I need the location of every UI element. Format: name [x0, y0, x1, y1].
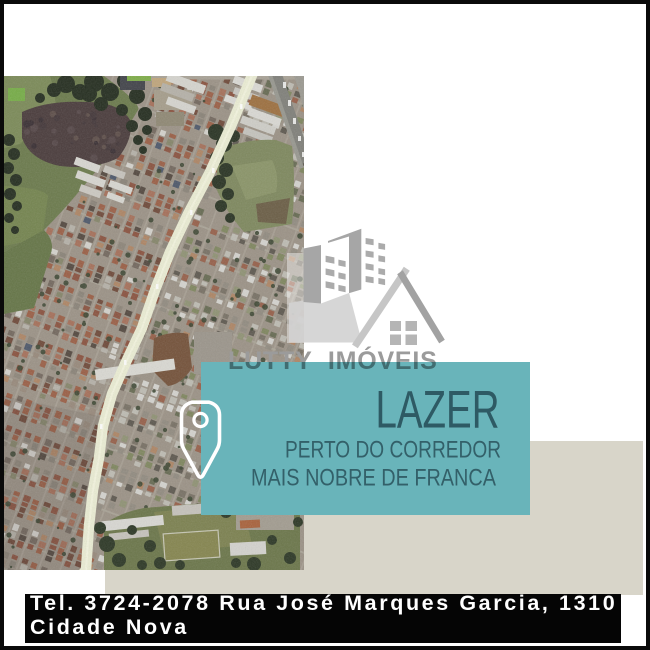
svg-text:MAIS NOBRE DE FRANCA: MAIS NOBRE DE FRANCA	[251, 465, 496, 492]
svg-text:PERTO DO CORREDOR: PERTO DO CORREDOR	[285, 437, 501, 464]
svg-text:LAZER: LAZER	[376, 380, 500, 439]
